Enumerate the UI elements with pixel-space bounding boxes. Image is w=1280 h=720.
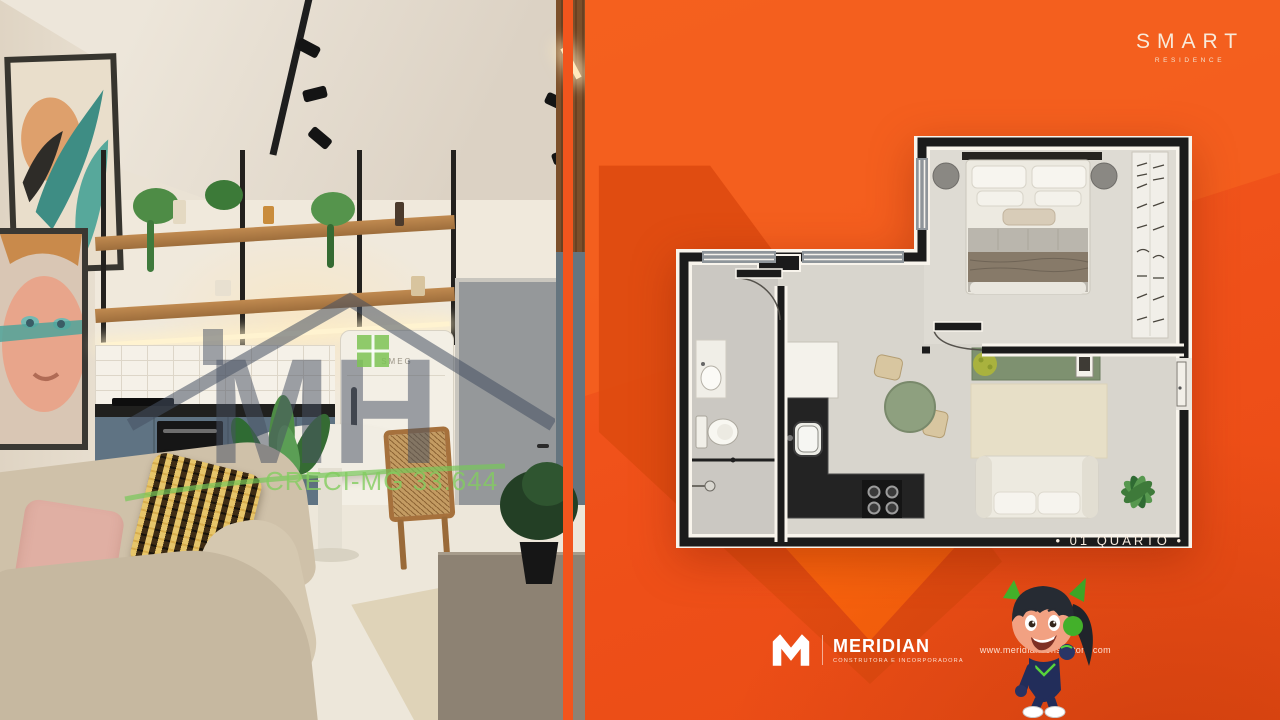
- eye-highlight: [1032, 621, 1034, 623]
- bath-sink: [701, 366, 721, 390]
- smart-residence-logo: SMART RESIDENCE: [1130, 30, 1250, 64]
- floor-plan: [676, 136, 1194, 548]
- bottle: [395, 202, 404, 226]
- marketing-flyer: SMEG: [0, 0, 1280, 720]
- hanging-vine: [147, 220, 154, 272]
- bathroom-floor: [688, 260, 778, 540]
- dining-table: [885, 382, 935, 432]
- fridge-brand-label: SMEG: [341, 357, 453, 366]
- portrait-art-graphic: [0, 234, 82, 444]
- meridian-logo-icon: [770, 633, 812, 667]
- footer-text: MERIDIAN CONSTRUTORA E INCORPORADORA: [833, 637, 964, 664]
- door-handle: [537, 444, 549, 448]
- plant-detail: [979, 358, 984, 363]
- bathroom-door: [736, 269, 782, 278]
- rug: [971, 384, 1107, 458]
- fridge: [786, 342, 838, 398]
- pillow: [1035, 191, 1081, 206]
- dining-chair: [873, 354, 903, 381]
- bath-faucet: [701, 362, 705, 366]
- faucet: [787, 435, 793, 441]
- bed-headboard: [962, 152, 1102, 160]
- floor-plan-graphic: [676, 136, 1194, 548]
- pillow: [972, 166, 1026, 188]
- burner: [887, 503, 898, 514]
- eye-highlight: [1053, 621, 1055, 623]
- windows: [702, 158, 928, 263]
- plan-caption: • 01 QUARTO •: [1010, 533, 1184, 548]
- toilet-tank: [696, 416, 707, 448]
- wall-art-portrait: [0, 228, 88, 450]
- bed-foot-fold: [970, 282, 1086, 294]
- chair-leg: [397, 519, 406, 569]
- bed-throw: [968, 252, 1088, 282]
- sink-basin: [798, 426, 818, 452]
- plant-detail: [988, 365, 993, 370]
- chair-back: [383, 426, 455, 522]
- mascot-graphic: [985, 570, 1117, 718]
- bedroom-door: [934, 322, 982, 331]
- jar: [173, 200, 186, 224]
- burner: [887, 487, 898, 498]
- entry-door: [1177, 362, 1186, 406]
- lumbar-pillow: [1003, 209, 1055, 225]
- mascot-pupil: [1029, 621, 1036, 628]
- decor-frame-art: [1079, 357, 1090, 371]
- cooktop: [112, 398, 174, 406]
- dining-chair: [383, 426, 465, 571]
- orange-divider-stripe: [563, 0, 573, 720]
- sofa-cushion: [1038, 492, 1080, 514]
- brand-subname: RESIDENCE: [1130, 57, 1250, 64]
- hanging-vine: [327, 224, 334, 268]
- jar: [263, 206, 274, 224]
- shelf-plant: [205, 180, 243, 210]
- mascot-pupil: [1050, 621, 1057, 628]
- company-name: MERIDIAN: [833, 637, 964, 655]
- sofa-cushion: [994, 492, 1036, 514]
- nightstand: [1091, 163, 1117, 189]
- mascot-shoe: [1045, 707, 1065, 718]
- company-tagline: CONSTRUTORA E INCORPORADORA: [833, 658, 964, 664]
- pillow: [977, 191, 1023, 206]
- mascot-character: [985, 570, 1117, 718]
- burner: [869, 487, 880, 498]
- open-shelving: [95, 140, 460, 350]
- shelf-post: [240, 150, 245, 345]
- entry-door-handle: [1178, 386, 1181, 389]
- shelf-plant: [311, 192, 355, 226]
- footer-divider: [822, 635, 823, 665]
- fridge-door-split: [347, 375, 445, 376]
- mascot-ear-right: [1069, 578, 1086, 602]
- sofa-arm: [976, 456, 992, 518]
- interior-photo: SMEG: [0, 0, 585, 720]
- burner: [869, 503, 880, 514]
- jar: [411, 276, 425, 296]
- mascot-hand-left: [1015, 685, 1027, 697]
- mascot-shoe: [1023, 707, 1043, 718]
- bowl: [215, 280, 231, 296]
- oven-handle: [163, 429, 217, 433]
- shower-head: [705, 481, 715, 491]
- nightstand: [933, 163, 959, 189]
- sofa-arm: [1082, 456, 1098, 518]
- pillow: [1032, 166, 1086, 188]
- shelf-post: [357, 150, 362, 345]
- mascot-headphone: [1063, 616, 1083, 636]
- brand-name: SMART: [1130, 30, 1250, 54]
- shelf-board: [95, 287, 455, 323]
- toilet-bowl: [717, 424, 733, 440]
- partition-knob: [731, 458, 736, 463]
